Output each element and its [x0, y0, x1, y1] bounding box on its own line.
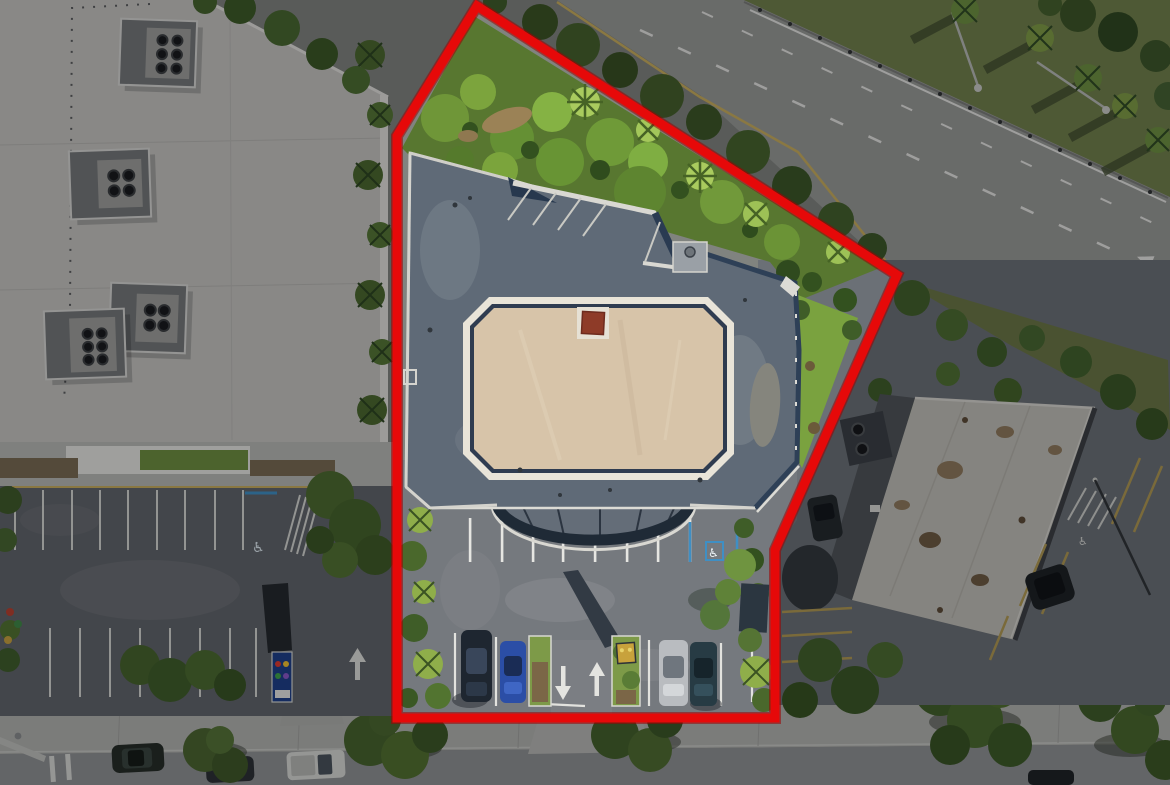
roof-hatch	[581, 311, 604, 334]
lot-car-blue	[500, 641, 526, 703]
aerial-photo: ♿	[0, 0, 1170, 785]
lot-car-silver	[659, 640, 688, 706]
aerial-photo-canvas: ♿	[0, 0, 1170, 785]
wheelchair-symbol: ♿	[708, 546, 719, 560]
roof-center-section	[463, 297, 734, 480]
roof-equipment-platform	[673, 242, 707, 272]
parking-island-1	[529, 636, 551, 706]
island-sign-box	[616, 642, 635, 663]
parking-island-2	[612, 636, 640, 706]
utility-shed	[739, 583, 769, 632]
